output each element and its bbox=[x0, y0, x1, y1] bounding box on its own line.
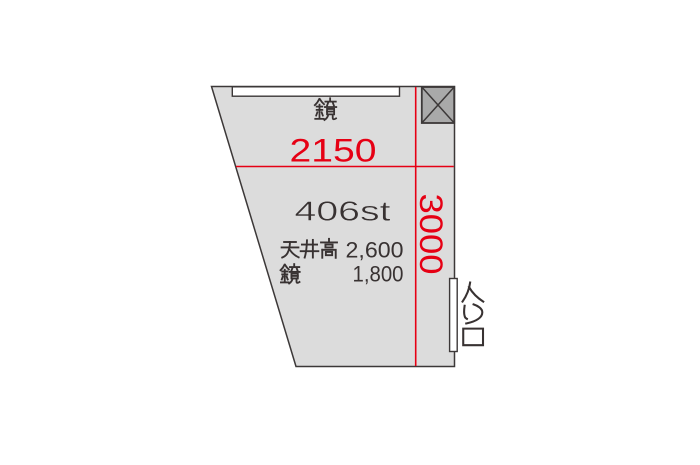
svg-text:1,800: 1,800 bbox=[353, 262, 404, 287]
svg-text:2,600: 2,600 bbox=[346, 238, 404, 263]
svg-text:3000: 3000 bbox=[413, 194, 449, 275]
svg-text:406st: 406st bbox=[295, 196, 391, 227]
svg-text:2150: 2150 bbox=[290, 133, 377, 169]
